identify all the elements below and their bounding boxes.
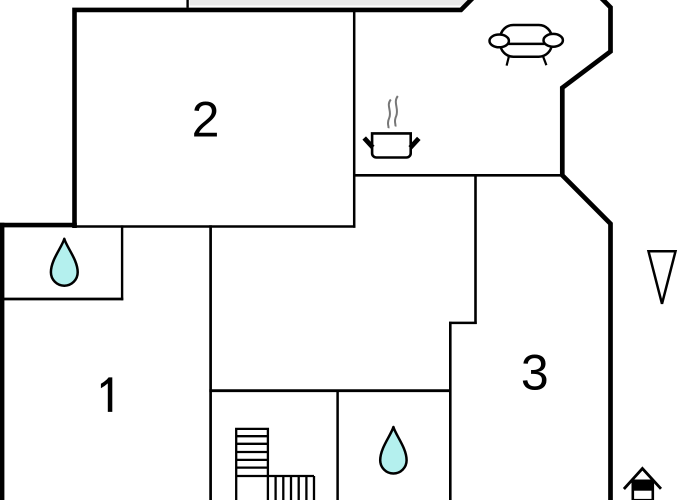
svg-text:2: 2 [192, 91, 220, 147]
svg-text:3: 3 [521, 344, 549, 400]
